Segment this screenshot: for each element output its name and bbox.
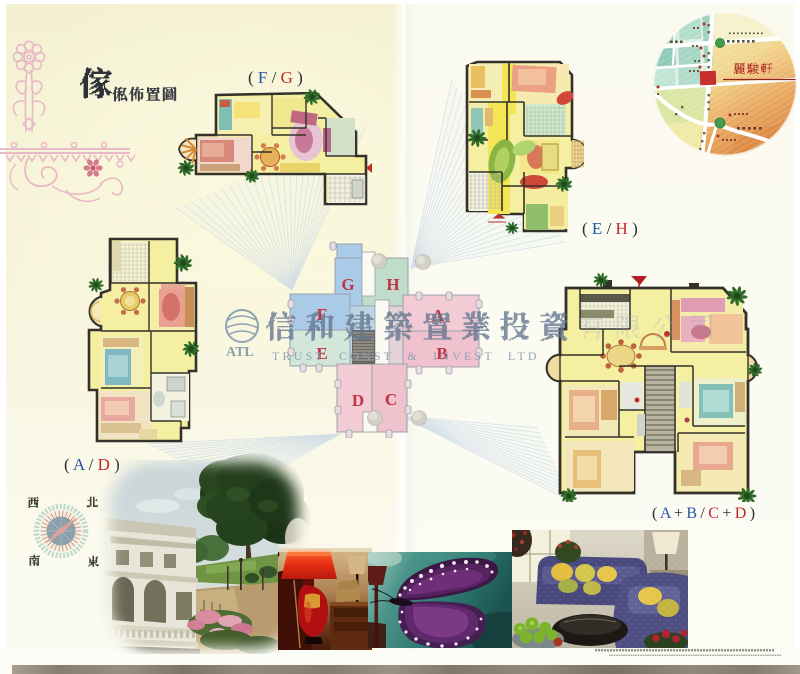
svg-text:G: G bbox=[341, 275, 354, 294]
svg-text:C: C bbox=[385, 390, 397, 409]
svg-text:H: H bbox=[386, 275, 399, 294]
svg-text:ATL: ATL bbox=[226, 345, 254, 360]
svg-text:TRUST CONST & INVEST LTD: TRUST CONST & INVEST LTD bbox=[272, 349, 540, 363]
svg-text:D: D bbox=[352, 391, 364, 410]
